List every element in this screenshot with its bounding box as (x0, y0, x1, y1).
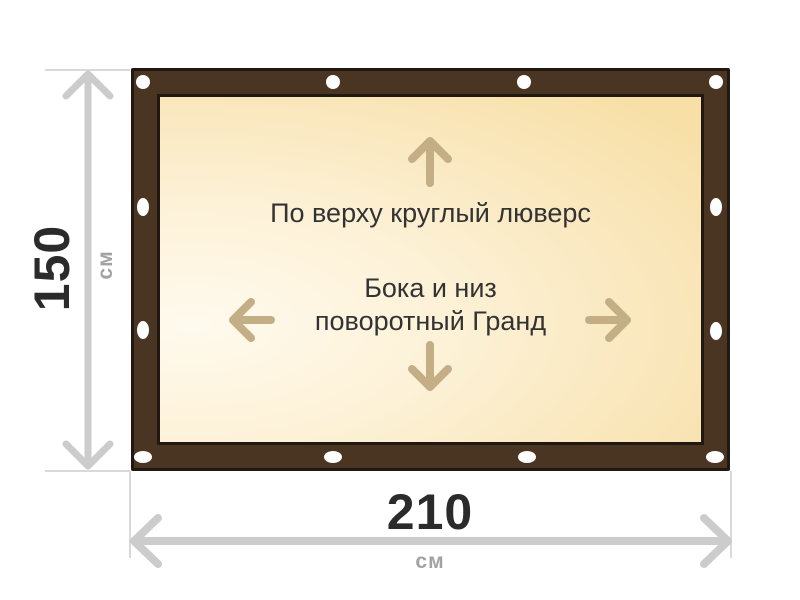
arrow-left-icon (225, 295, 279, 345)
height-dimension-value: 150 (23, 225, 81, 311)
grommet-left-icon (137, 198, 149, 216)
grommet-top-icon (517, 75, 531, 89)
grommet-bottom-left-icon (134, 451, 152, 463)
arrow-down-icon (405, 341, 455, 395)
banner-frame: По верху круглый люверс Бока и низ повор… (131, 68, 730, 471)
grommet-top-right-icon (709, 75, 723, 89)
grommet-left-icon (137, 321, 149, 339)
arrow-up-icon (405, 133, 455, 187)
grommet-right-icon (710, 322, 722, 340)
grommet-top-left-icon (136, 75, 150, 89)
product-diagram: 150 см По верху круглый люверс Бока и ни… (0, 0, 800, 600)
grommet-right-icon (710, 198, 722, 216)
grommet-bottom-icon (324, 451, 342, 463)
grommet-top-icon (326, 75, 340, 89)
width-dimension-unit: см (415, 550, 444, 574)
height-dimension-unit: см (94, 250, 118, 279)
top-edge-note: По верху круглый люверс (160, 197, 701, 230)
arrow-right-icon (581, 295, 635, 345)
grommet-bottom-right-icon (706, 451, 724, 463)
width-dimension-value: 210 (387, 483, 473, 541)
banner-canvas: По верху круглый люверс Бока и низ повор… (157, 94, 704, 445)
grommet-bottom-icon (518, 451, 536, 463)
